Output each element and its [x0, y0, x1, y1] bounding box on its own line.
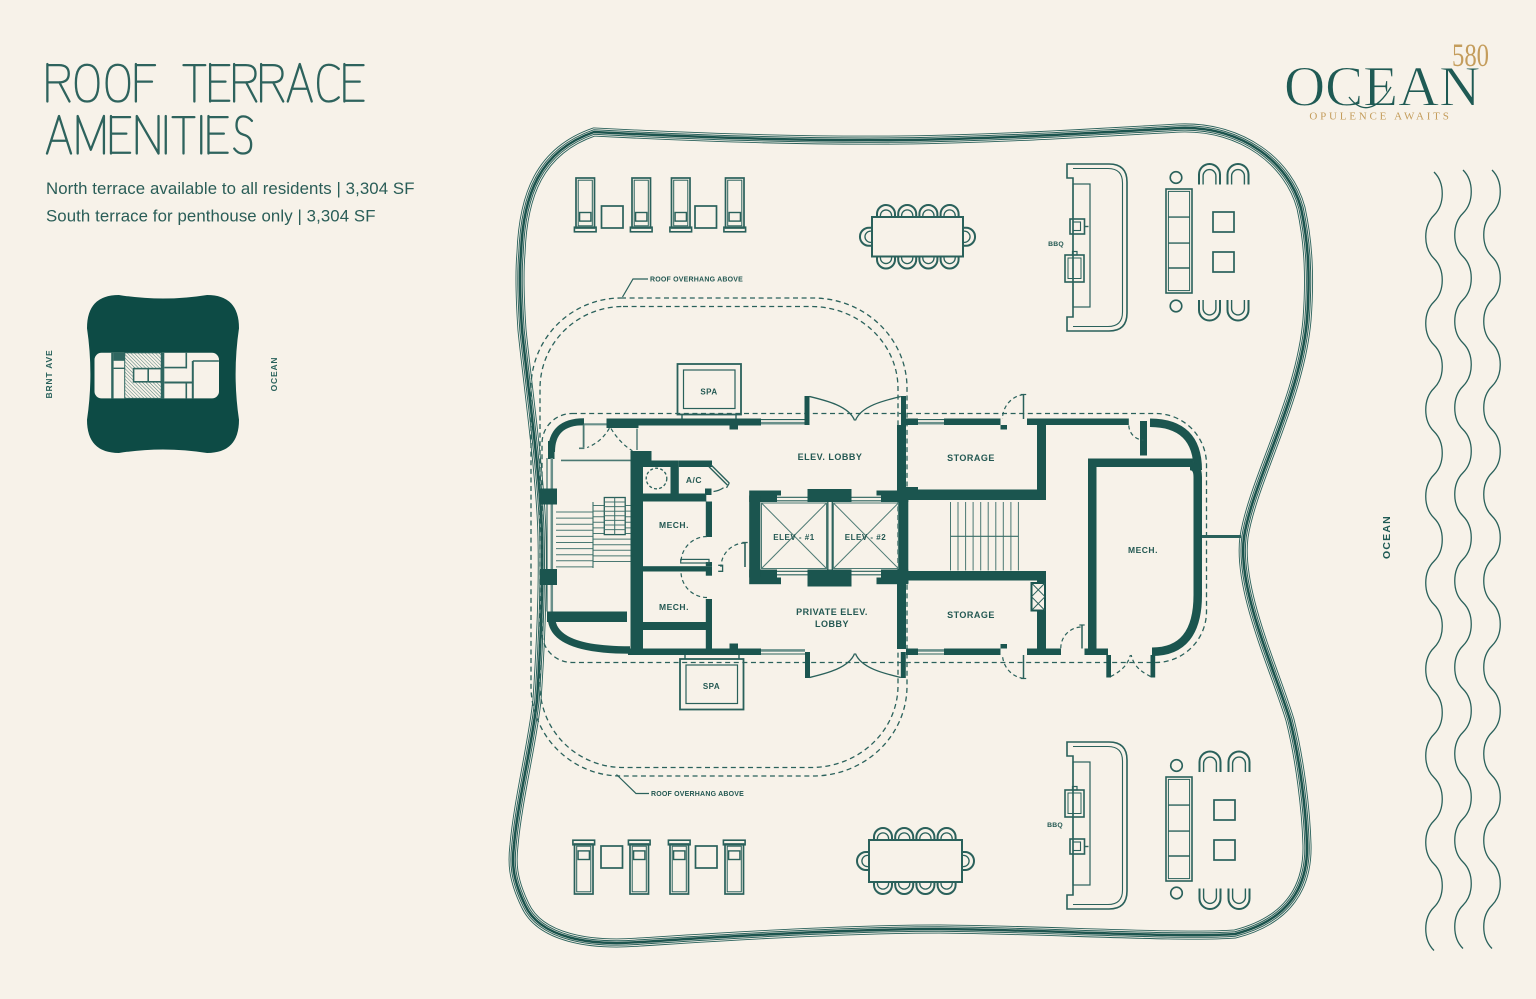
svg-text:OCEAN: OCEAN [1381, 515, 1393, 559]
svg-text:South terrace for penthouse on: South terrace for penthouse only | 3,304… [46, 207, 376, 226]
svg-text:SPA: SPA [700, 388, 717, 397]
svg-text:ROOF OVERHANG ABOVE: ROOF OVERHANG ABOVE [650, 277, 743, 284]
svg-text:MECH.: MECH. [1128, 545, 1158, 555]
svg-text:BBQ: BBQ [1048, 241, 1064, 248]
svg-text:MECH.: MECH. [659, 602, 689, 612]
svg-text:BBQ: BBQ [1047, 822, 1063, 829]
svg-text:ELEV - #2: ELEV - #2 [845, 533, 886, 542]
svg-text:LOBBY: LOBBY [815, 619, 849, 629]
svg-text:OCEAN: OCEAN [1284, 56, 1480, 119]
svg-text:SPA: SPA [703, 682, 720, 691]
svg-text:BRNT AVE: BRNT AVE [44, 350, 54, 399]
svg-text:A/C: A/C [686, 475, 702, 485]
svg-text:ROOF OVERHANG ABOVE: ROOF OVERHANG ABOVE [651, 791, 744, 798]
svg-text:North terrace available to all: North terrace available to all residents… [46, 179, 415, 198]
svg-text:STORAGE: STORAGE [947, 453, 995, 463]
svg-text:ELEV. LOBBY: ELEV. LOBBY [798, 452, 863, 462]
svg-text:ELEV - #1: ELEV - #1 [773, 533, 814, 542]
svg-text:STORAGE: STORAGE [947, 610, 995, 620]
svg-text:PRIVATE ELEV.: PRIVATE ELEV. [796, 607, 868, 617]
svg-text:OPULENCE AWAITS: OPULENCE AWAITS [1309, 111, 1451, 123]
svg-text:MECH.: MECH. [659, 520, 689, 530]
svg-text:OCEAN: OCEAN [269, 357, 279, 392]
